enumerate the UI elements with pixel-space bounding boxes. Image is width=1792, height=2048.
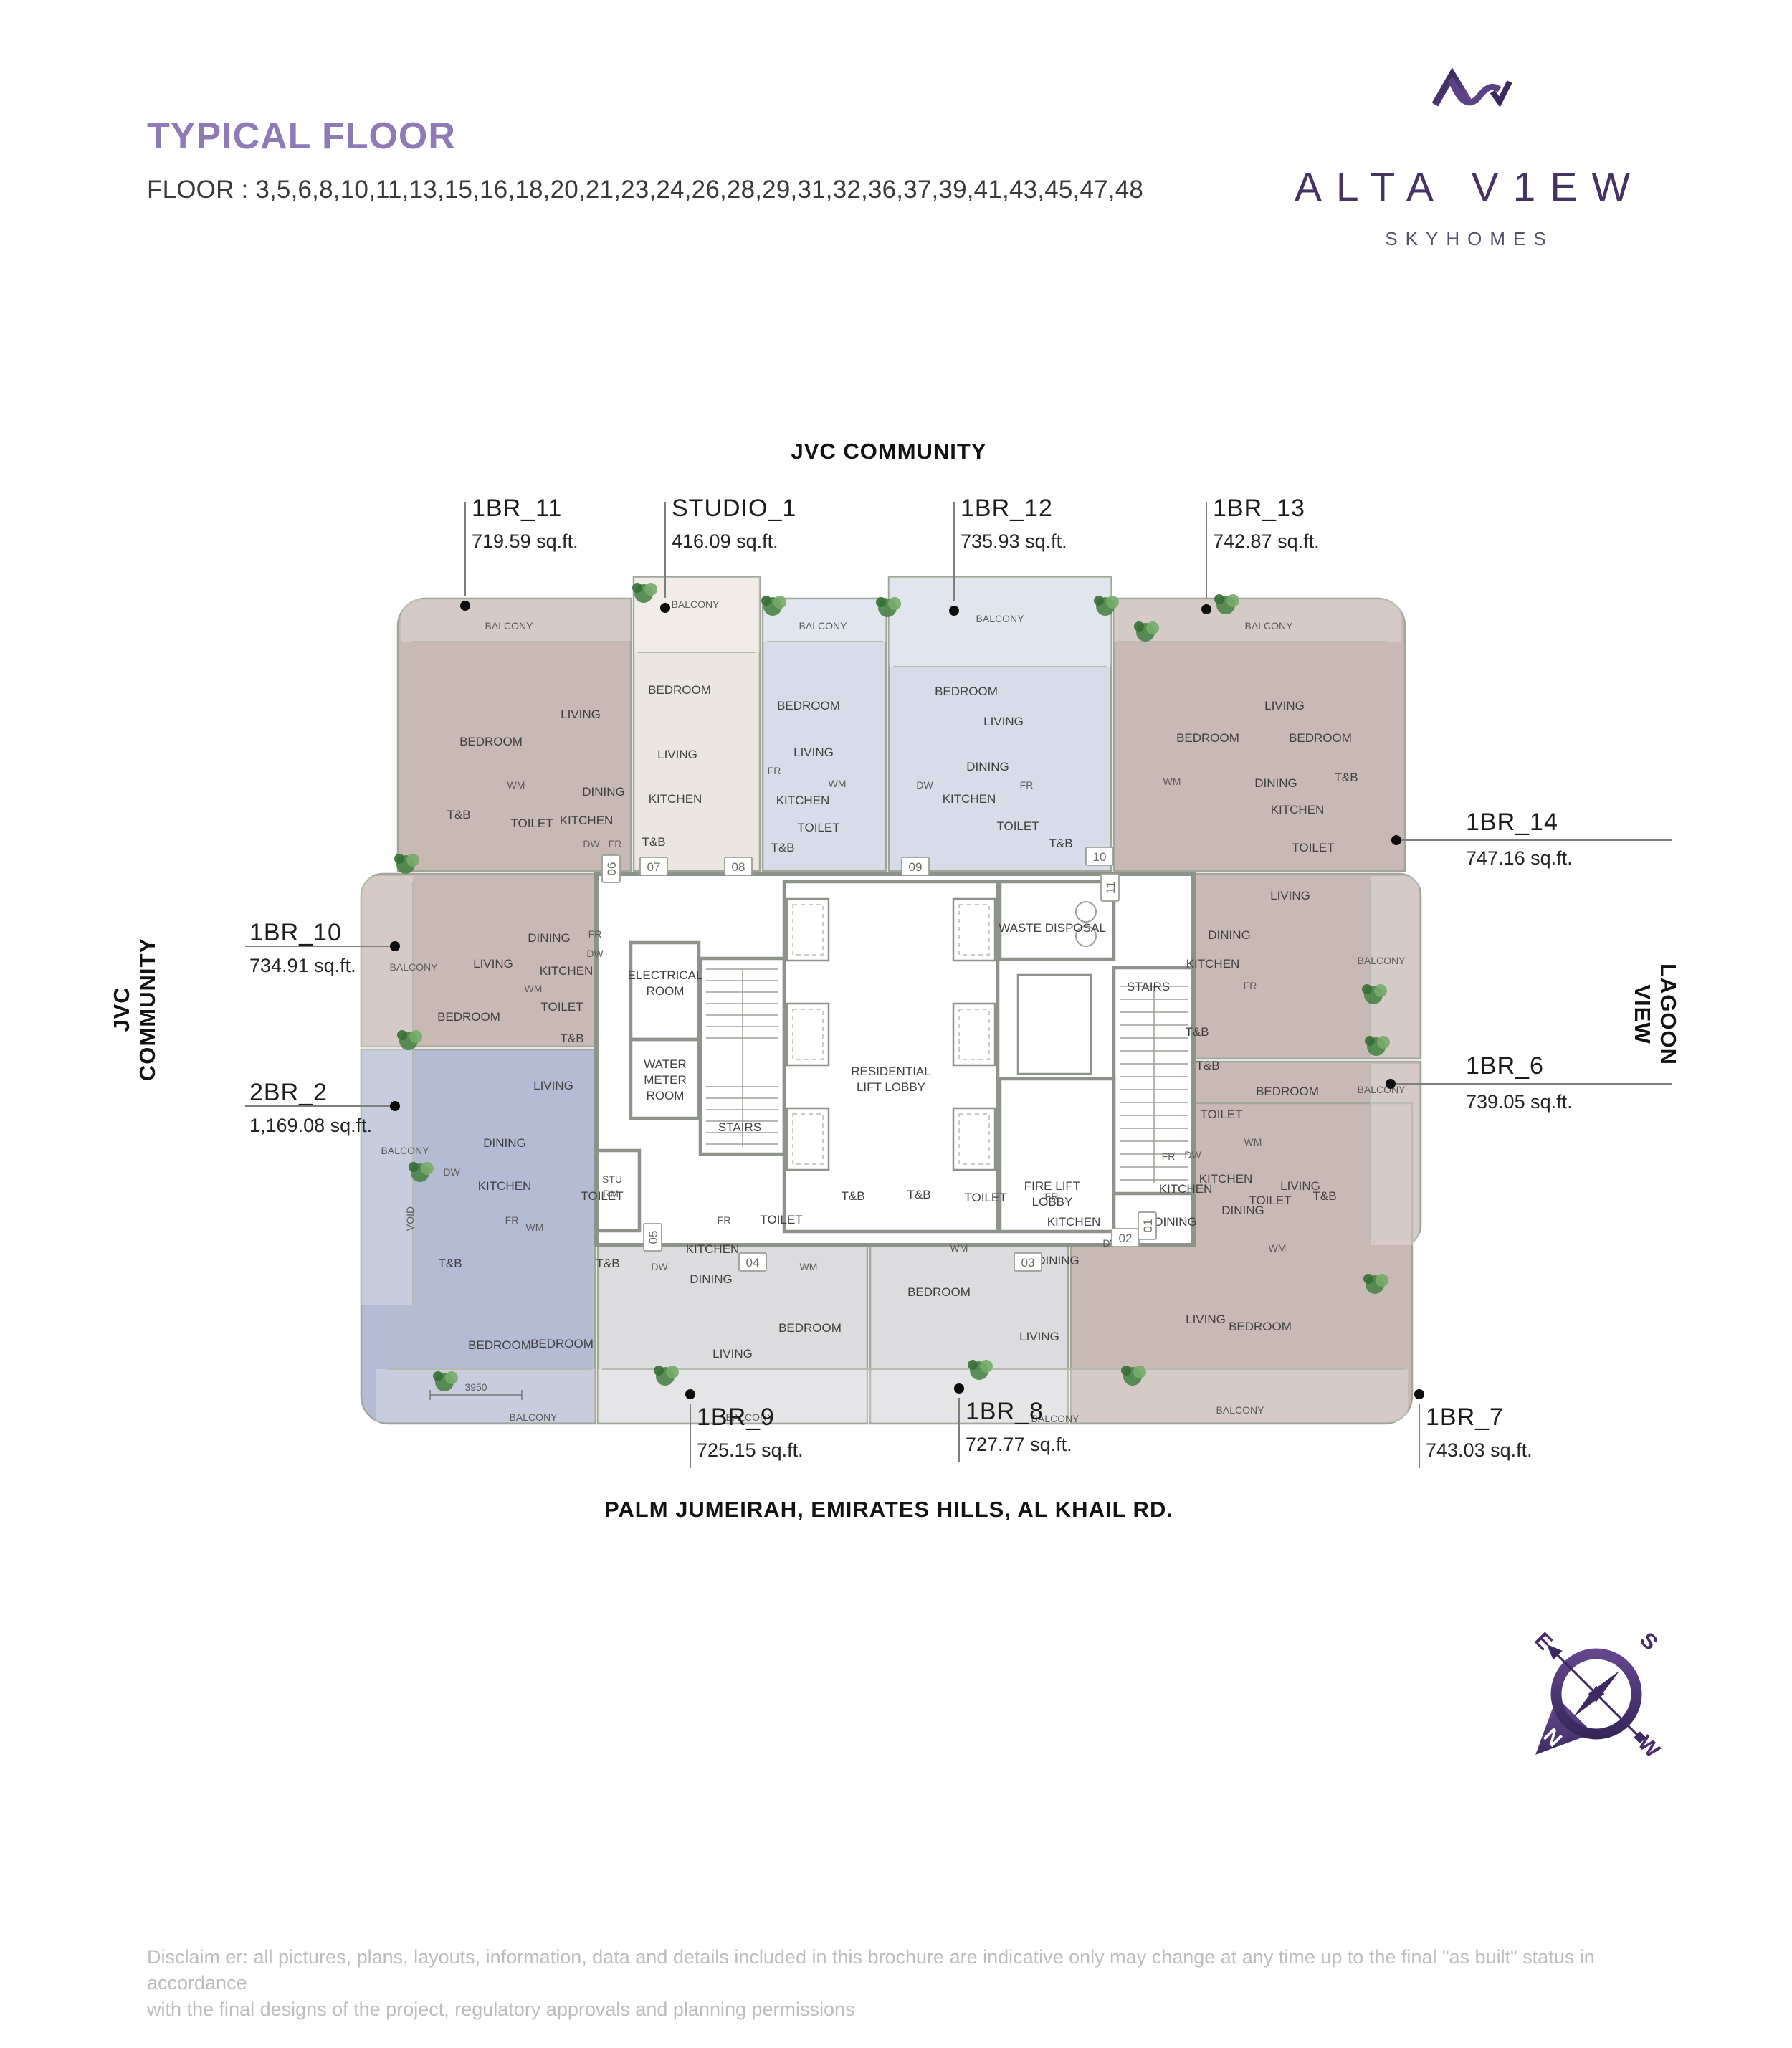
unit-tag: 11: [1101, 874, 1119, 901]
leader-1br-9: [690, 1404, 691, 1468]
unit-tag: 07: [640, 857, 667, 875]
room-label: FR: [1244, 980, 1257, 991]
svg-text:10: 10: [1093, 850, 1107, 864]
room-label: TOILET: [1249, 1194, 1291, 1207]
room-label: DINING: [1036, 1254, 1080, 1267]
room-label: FR: [1020, 779, 1034, 791]
room-label: T&B: [1049, 837, 1072, 850]
room-label: TOILET: [1200, 1108, 1242, 1121]
callout-studio-1-name: STUDIO_1: [672, 495, 796, 523]
floors-list: FLOOR : 3,5,6,8,10,11,13,15,16,18,20,21,…: [147, 176, 1143, 204]
room-label: WM: [526, 1221, 544, 1233]
room-label: TOILET: [797, 821, 839, 834]
leader-1br-7: [1419, 1404, 1420, 1468]
dot-1br-14: [1391, 835, 1401, 845]
room-label: BALCONY: [485, 620, 534, 632]
room-label: BALCONY: [381, 1145, 430, 1156]
region-label-bottom: PALM JUMEIRAH, EMIRATES HILLS, AL KHAIL …: [344, 1497, 1434, 1523]
unit-tag: 05: [644, 1224, 662, 1251]
compass-rose: E S W N: [1514, 1611, 1679, 1776]
room-label: STAIRS: [1127, 980, 1170, 994]
room-label: FR: [505, 1214, 519, 1226]
callout-1br-14-name: 1BR_14: [1466, 809, 1558, 837]
room-label: BEDROOM: [777, 699, 840, 713]
room-label: FR: [588, 928, 602, 940]
room-label: TOILET: [510, 816, 553, 830]
room-label: DINING: [1254, 776, 1297, 790]
room-label: DW: [586, 948, 604, 959]
room-label: BALCONY: [510, 1411, 558, 1423]
room-label: KITCHEN: [1047, 1215, 1101, 1229]
room-label: DINING: [582, 785, 625, 799]
room-label: BALCONY: [976, 613, 1025, 624]
room-label: FIRE LIFT: [1024, 1179, 1080, 1193]
svg-text:06: 06: [605, 862, 619, 876]
room-label: BALCONY: [672, 599, 720, 610]
room-label: LIVING: [1270, 889, 1310, 902]
dot-1br-13: [1201, 604, 1211, 614]
room-label: T&B: [1312, 1189, 1336, 1203]
room-label: KITCHEN: [1186, 957, 1240, 971]
leader-1br-14: [1401, 839, 1672, 841]
svg-text:04: 04: [746, 1256, 760, 1270]
room-label: VOID: [404, 1206, 416, 1231]
svg-text:03: 03: [1021, 1256, 1035, 1270]
room-label: T&B: [596, 1257, 619, 1270]
room-label: DINING: [690, 1272, 733, 1286]
room-label: LIVING: [657, 748, 697, 761]
room-label: BEDROOM: [1289, 731, 1352, 745]
callout-studio-1-area: 416.09 sq.ft.: [672, 530, 778, 553]
room-label: RESIDENTIAL: [851, 1065, 930, 1078]
callout-1br-9-area: 725.15 sq.ft.: [697, 1439, 804, 1462]
room-label: T&B: [447, 808, 470, 821]
room-label: BEDROOM: [459, 735, 523, 748]
room-label: BEDROOM: [907, 1285, 971, 1299]
compass-letter-s: S: [1635, 1628, 1662, 1654]
room-label: ELECTRICAL: [628, 968, 703, 982]
room-label: LIVING: [983, 715, 1024, 728]
room-label: WM: [829, 778, 847, 789]
room-label: WATER: [644, 1057, 687, 1071]
dot-studio-1: [660, 603, 670, 613]
room-label: LIVING: [1186, 1313, 1226, 1326]
room-label: LIVING: [533, 1079, 573, 1092]
room-label: LIVING: [473, 957, 513, 971]
unit-tag: 02: [1112, 1229, 1139, 1247]
unit-tag: 10: [1086, 847, 1113, 865]
room-label: T&B: [1334, 771, 1358, 784]
room-label: DW: [443, 1166, 460, 1178]
leader-1br-8: [958, 1398, 960, 1462]
room-label: STAIRS: [718, 1120, 761, 1134]
room-label: T&B: [642, 835, 665, 849]
room-label: WASTE DISPOSAL: [999, 921, 1106, 935]
callout-1br-13-area: 742.87 sq.ft.: [1213, 530, 1320, 553]
room-label: T&B: [438, 1257, 462, 1270]
room-label: TOILET: [996, 819, 1039, 833]
svg-text:09: 09: [909, 860, 923, 874]
leader-studio-1: [664, 502, 666, 598]
svg-text:05: 05: [647, 1231, 660, 1244]
room-label: 3950: [464, 1381, 487, 1393]
room-label: KITCHEN: [943, 792, 996, 806]
room-label: WM: [525, 983, 543, 994]
room-label: BALCONY: [1358, 1084, 1406, 1095]
callout-1br-10-name: 1BR_10: [249, 919, 342, 947]
callout-1br-7-name: 1BR_7: [1426, 1404, 1504, 1432]
compass-dart-south: [1588, 1667, 1624, 1702]
callout-1br-13-name: 1BR_13: [1213, 495, 1305, 523]
room-label: KITCHEN: [649, 792, 702, 806]
room-label: FR: [768, 765, 781, 776]
room-label: FR: [609, 838, 622, 849]
leader-1br-13: [1206, 502, 1207, 599]
room-label: LIVING: [793, 746, 834, 759]
dot-1br-7: [1414, 1389, 1424, 1399]
unit-tag: 09: [902, 857, 929, 875]
callout-1br-7-area: 743.03 sq.ft.: [1426, 1439, 1533, 1462]
room-label: BEDROOM: [1256, 1085, 1319, 1098]
room-label: KITCHEN: [478, 1179, 532, 1193]
unit-tag: 06: [602, 855, 620, 882]
room-label: T&B: [560, 1032, 583, 1045]
room-label: KITCHEN: [686, 1242, 740, 1256]
unit-tag: 01: [1138, 1212, 1156, 1239]
room-label: KITCHEN: [560, 814, 614, 827]
room-label: WM: [800, 1261, 818, 1272]
room-label: DINING: [528, 931, 571, 945]
region-label-top: JVC COMMUNITY: [710, 439, 1068, 465]
callout-1br-11-area: 719.59 sq.ft.: [472, 530, 578, 553]
room-label: TOILET: [964, 1191, 1006, 1204]
region-label-right: LAGOON VIEW: [1652, 932, 1681, 1097]
room-label: BEDROOM: [935, 685, 998, 698]
room-label: TOILET: [1292, 841, 1334, 854]
dot-1br-9: [685, 1389, 695, 1399]
room-label: LOBBY: [1032, 1195, 1073, 1209]
room-label: KITCHEN: [1159, 1182, 1213, 1196]
room-label: T&B: [1185, 1025, 1209, 1039]
room-label: RM.: [603, 1188, 621, 1199]
room-label: T&B: [841, 1189, 864, 1203]
callout-1br-10-area: 734.91 sq.ft.: [249, 955, 356, 977]
room-label: LIVING: [712, 1347, 753, 1361]
svg-text:01: 01: [1141, 1219, 1155, 1233]
dot-1br-8: [954, 1383, 964, 1394]
room-label: LIVING: [1019, 1330, 1059, 1343]
room-label: WM: [507, 779, 525, 791]
callout-1br-11-name: 1BR_11: [472, 495, 562, 523]
room-label: BALCONY: [1245, 620, 1294, 632]
room-label: METER: [644, 1073, 687, 1087]
room-label: BEDROOM: [1176, 731, 1239, 745]
room-label: BEDROOM: [468, 1338, 531, 1352]
room-label: BEDROOM: [437, 1010, 500, 1024]
room-label: DW: [651, 1261, 668, 1272]
brand-subtitle: SKYHOMES: [1287, 228, 1652, 250]
room-label: KITCHEN: [1271, 803, 1325, 816]
callout-1br-9-name: 1BR_9: [697, 1404, 775, 1432]
dot-1br-10: [390, 941, 400, 951]
callout-1br-12-area: 735.93 sq.ft.: [961, 530, 1067, 553]
room-label: BEDROOM: [648, 683, 711, 697]
unit-tag: 04: [739, 1253, 766, 1271]
callout-1br-6-area: 739.05 sq.ft.: [1466, 1091, 1573, 1113]
room-label: BEDROOM: [778, 1321, 842, 1335]
room-label: BALCONY: [799, 620, 848, 632]
svg-text:11: 11: [1104, 881, 1117, 894]
room-label: ROOM: [647, 1089, 685, 1102]
room-label: KITCHEN: [776, 794, 830, 807]
region-label-left: JVC COMMUNITY: [109, 916, 138, 1102]
room-label: T&B: [1196, 1059, 1219, 1072]
room-label: DINING: [483, 1136, 526, 1150]
brand-name: ALTA V1EW: [1287, 163, 1652, 211]
page-title: TYPICAL FLOOR: [147, 115, 456, 158]
svg-text:07: 07: [647, 860, 661, 874]
disclaimer-text: Disclaim er: all pictures, plans, layout…: [147, 1944, 1695, 2022]
dot-2br-2: [390, 1101, 400, 1111]
room-label: BEDROOM: [1229, 1320, 1292, 1333]
room-label: LIVING: [561, 708, 601, 721]
room-label: FR: [718, 1214, 731, 1226]
leader-1br-12: [953, 502, 955, 601]
callout-1br-6-name: 1BR_6: [1466, 1052, 1544, 1080]
room-label: T&B: [907, 1188, 930, 1201]
callout-2br-2-area: 1,169.08 sq.ft.: [249, 1115, 372, 1137]
callout-1br-8-name: 1BR_8: [966, 1398, 1044, 1426]
room-label: FR: [1162, 1151, 1176, 1162]
room-label: DINING: [1208, 928, 1251, 942]
room-label: BALCONY: [1358, 955, 1406, 966]
logo-wave-icon: [1432, 66, 1512, 110]
callout-1br-14-area: 747.16 sq.ft.: [1466, 847, 1573, 870]
room-label: KITCHEN: [540, 964, 594, 978]
compass-icon: E S W N: [1514, 1611, 1679, 1776]
leader-1br-11: [464, 502, 466, 596]
floor-plan: BALCONYBEDROOMLIVINGWMTOILETT&BDININGKIT…: [344, 545, 1434, 1434]
svg-text:08: 08: [732, 860, 745, 874]
room-label: DW: [1184, 1149, 1201, 1161]
room-label: LIFT LOBBY: [857, 1080, 925, 1094]
dot-1br-6: [1386, 1079, 1396, 1089]
room-label: WM: [950, 1242, 968, 1254]
dot-1br-12: [949, 606, 959, 616]
dot-1br-11: [460, 601, 470, 611]
room-label: DW: [583, 838, 600, 849]
room-label: DW: [916, 779, 933, 791]
unit-tag: 08: [725, 857, 752, 875]
leader-1br-6: [1395, 1083, 1672, 1085]
unit-tag: 03: [1014, 1253, 1042, 1271]
room-label: BEDROOM: [530, 1337, 594, 1351]
callout-1br-12-name: 1BR_12: [961, 495, 1053, 523]
room-label: LIVING: [1264, 699, 1305, 713]
callout-1br-8-area: 727.77 sq.ft.: [966, 1434, 1072, 1456]
room-label: WM: [1244, 1136, 1262, 1148]
room-label: WM: [1163, 776, 1181, 787]
room-label: WM: [1269, 1242, 1287, 1254]
room-label: TOILET: [540, 1000, 583, 1014]
svg-text:02: 02: [1119, 1232, 1133, 1245]
room-label: ROOM: [647, 984, 685, 998]
room-label: DINING: [966, 760, 1009, 773]
room-label: BALCONY: [1216, 1404, 1265, 1416]
room-label: BALCONY: [390, 961, 439, 973]
room-label: T&B: [771, 841, 794, 854]
room-label: DINING: [1154, 1215, 1197, 1229]
callout-2br-2-name: 2BR_2: [249, 1079, 328, 1107]
room-label: STU: [602, 1173, 622, 1185]
room-label: TOILET: [760, 1213, 802, 1227]
